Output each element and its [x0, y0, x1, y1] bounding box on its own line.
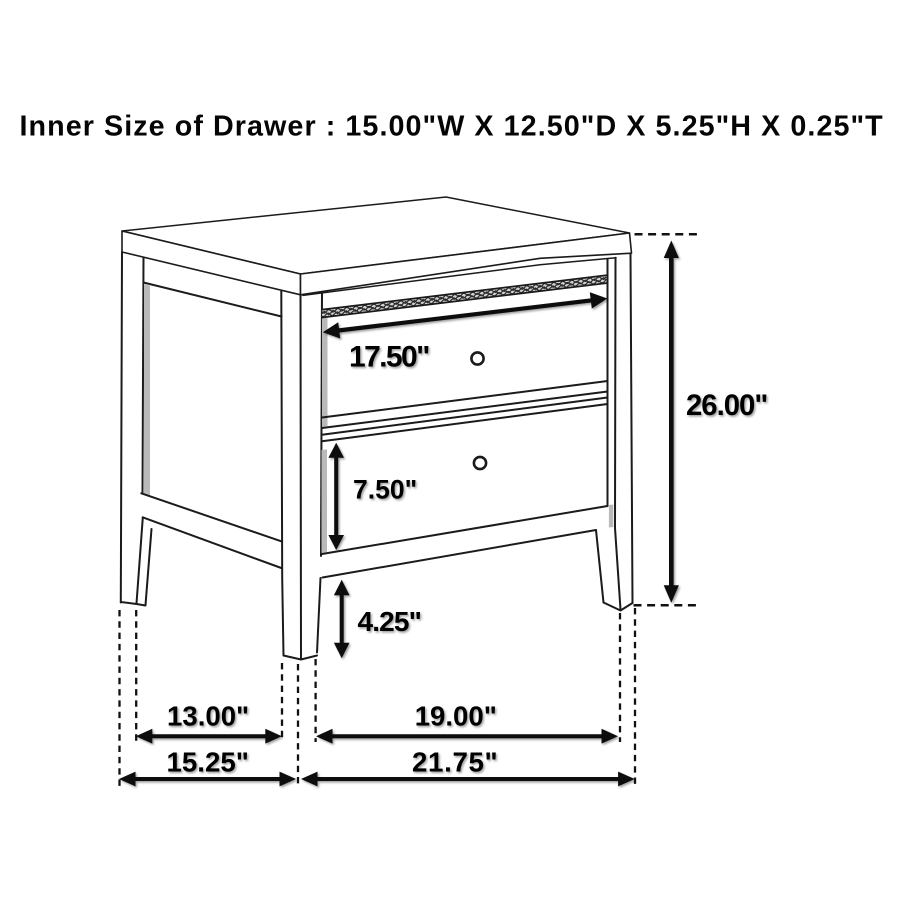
svg-text:26.00": 26.00" [686, 389, 767, 422]
svg-text:Inner Size of Drawer : 15.00"W: Inner Size of Drawer : 15.00"W X 12.50"D… [20, 111, 884, 143]
svg-text:19.00": 19.00" [415, 700, 497, 731]
svg-text:21.75": 21.75" [412, 746, 498, 777]
svg-text:7.50": 7.50" [353, 475, 417, 505]
svg-text:17.50": 17.50" [349, 341, 429, 374]
svg-text:13.00": 13.00" [167, 700, 249, 731]
svg-text:15.25": 15.25" [167, 746, 249, 777]
svg-text:4.25": 4.25" [358, 606, 422, 637]
